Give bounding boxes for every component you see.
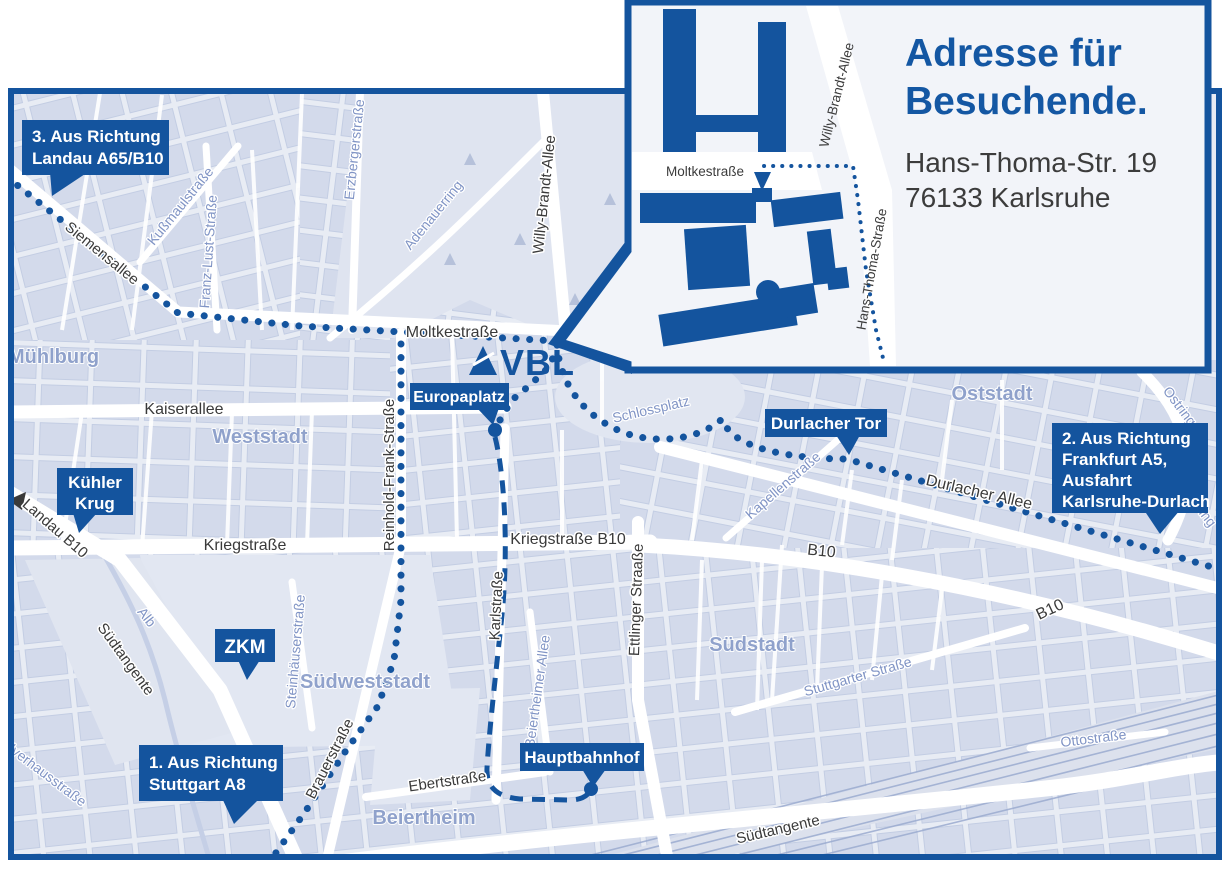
label-reinhold-frank: Reinhold-Frank-Straße <box>381 399 398 552</box>
badge-frankfurt-line3: Ausfahrt <box>1062 471 1132 490</box>
label-suedweststadt: Südweststadt <box>300 671 430 693</box>
badge-hauptbahnhof-label: Hauptbahnhof <box>524 748 640 767</box>
inset-heading-line2: Besuchende. <box>905 80 1148 123</box>
inset-callout: Moltkestraße Willy-Brandt-Allee Hans-Tho… <box>548 2 1208 374</box>
badge-frankfurt-line4: Karlsruhe-Durlach <box>1062 492 1210 511</box>
label-kriegstrasse-b10: Kriegstraße B10 <box>510 531 626 548</box>
badge-landau-line1: 3. Aus Richtung <box>32 127 161 146</box>
badge-europaplatz-label: Europaplatz <box>413 389 505 406</box>
inset-address-line1: Hans-Thoma-Str. 19 <box>905 147 1157 178</box>
karlsruhe-map: Siemensallee Moltkestraße Kaiserallee Kr… <box>0 0 1230 874</box>
inset-label-moltkestrasse: Moltkestraße <box>666 164 744 179</box>
badge-kuehler-krug-line1: Kühler <box>68 473 122 492</box>
label-b10-mid: B10 <box>806 542 836 562</box>
badge-stuttgart-line1: 1. Aus Richtung <box>149 753 278 772</box>
europaplatz-marker-dot <box>488 423 502 437</box>
label-weststadt: Weststadt <box>212 426 308 448</box>
label-muehlburg: Mühlburg <box>8 346 99 368</box>
badge-kuehler-krug-line2: Krug <box>75 494 115 513</box>
hauptbahnhof-marker-dot <box>584 782 598 796</box>
label-kriegstrasse: Kriegstraße <box>204 537 287 554</box>
badge-durlacher-tor-label: Durlacher Tor <box>771 414 882 433</box>
label-beiertheim: Beiertheim <box>372 807 475 829</box>
label-kaiserallee: Kaiserallee <box>144 401 223 418</box>
label-karlstrasse: Karlstraße <box>486 571 507 641</box>
badge-stuttgart-line2: Stuttgart A8 <box>149 775 246 794</box>
badge-landau-line2: Landau A65/B10 <box>32 149 164 168</box>
label-moltkestrasse: Moltkestraße <box>406 324 499 341</box>
label-suedstadt: Südstadt <box>709 634 795 656</box>
inset-heading-line1: Adresse für <box>905 32 1122 75</box>
inset-address-line2: 76133 Karlsruhe <box>905 182 1110 213</box>
badge-frankfurt-line2: Frankfurt A5, <box>1062 450 1167 469</box>
badge-zkm-label: ZKM <box>224 637 265 658</box>
vbl-directions-map-page: Siemensallee Moltkestraße Kaiserallee Kr… <box>0 0 1230 874</box>
label-oststadt: Oststadt <box>951 383 1032 405</box>
badge-frankfurt-line1: 2. Aus Richtung <box>1062 429 1191 448</box>
